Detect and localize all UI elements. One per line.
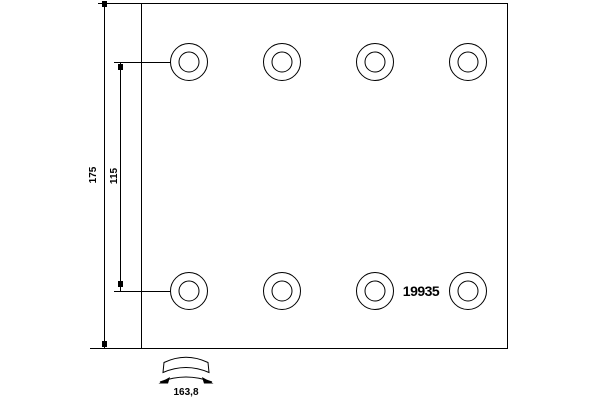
rivet-hole-inner	[365, 52, 385, 72]
rivet-hole	[450, 273, 487, 310]
dimension-label-overall-height: 175	[88, 166, 99, 183]
technical-drawing: 175 115	[0, 0, 600, 400]
dimension-tick-bottom-icon	[102, 341, 107, 347]
rivet-hole	[357, 273, 394, 310]
rivet-hole-inner	[272, 281, 292, 301]
lining-cross-section	[163, 357, 209, 372]
rivet-hole-outer	[264, 273, 301, 310]
dimension-label-hole-spacing: 115	[109, 167, 120, 184]
arc-dimension-arrow-left-icon	[159, 377, 171, 384]
rivet-hole-inner	[365, 281, 385, 301]
rivet-hole-outer	[450, 44, 487, 81]
rivet-hole-outer	[357, 273, 394, 310]
rivet-hole-inner	[458, 281, 478, 301]
rivet-hole-outer	[171, 44, 208, 81]
rivet-hole	[264, 273, 301, 310]
rivet-hole	[264, 44, 301, 81]
rivet-hole-outer	[357, 44, 394, 81]
rivet-hole-inner	[179, 52, 199, 72]
rivet-hole-outer	[171, 273, 208, 310]
rivet-hole	[171, 273, 208, 310]
rivet-hole	[171, 44, 208, 81]
part-number-label: 19935	[403, 283, 440, 299]
rivet-hole-outer	[264, 44, 301, 81]
rivet-hole-inner	[179, 281, 199, 301]
arc-width-label: 163,8	[173, 387, 198, 398]
hole-spacing-tick-bottom-icon	[118, 281, 123, 287]
arc-dimension-arrow-right-icon	[202, 377, 214, 384]
rivet-hole	[450, 44, 487, 81]
hole-spacing-tick-top-icon	[118, 64, 123, 70]
rivet-hole-inner	[458, 52, 478, 72]
drawing-canvas: 175 115	[0, 0, 600, 400]
rivet-hole-outer	[450, 273, 487, 310]
rivet-hole	[357, 44, 394, 81]
dimension-tick-top-icon	[102, 1, 107, 7]
rivet-hole-inner	[272, 52, 292, 72]
